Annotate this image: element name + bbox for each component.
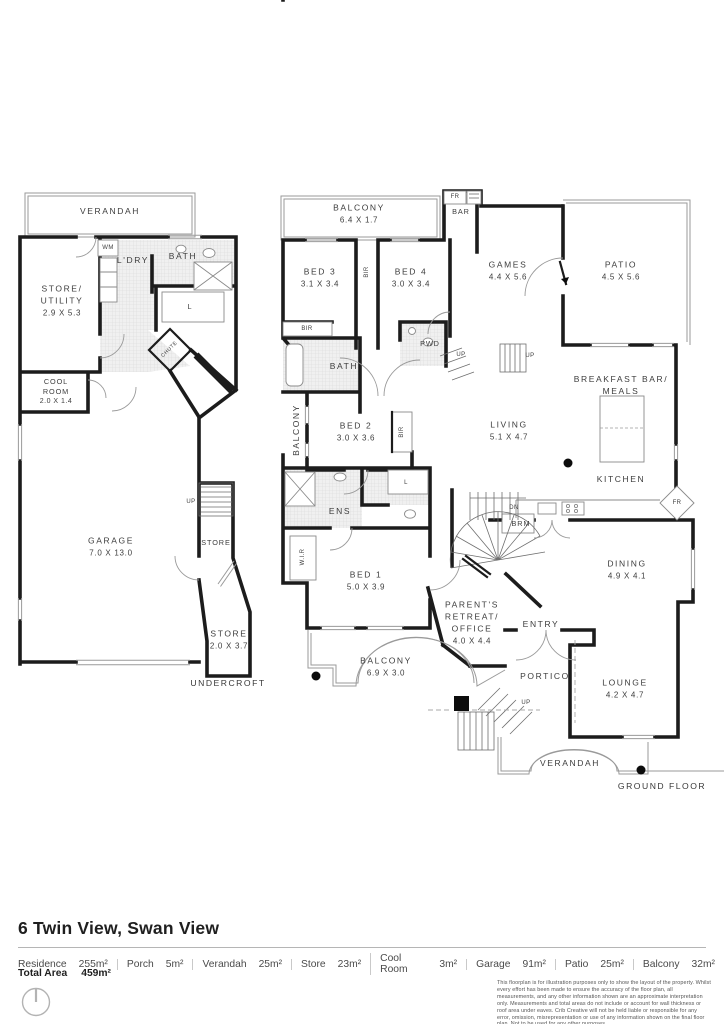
page-title: 6 Twin View, Swan View [18, 918, 219, 939]
room-label-parents-retreat: PARENT'SRETREAT/OFFICE4.0 X 4.4 [445, 600, 499, 647]
label-brm: BRM [512, 519, 531, 529]
label-up-1: UP [456, 351, 465, 359]
label-wir: W.I.R [299, 549, 307, 566]
label-dn: DN [509, 504, 518, 512]
toilet-icon [203, 249, 215, 258]
floorplan-page: VERANDAH STORE/UTILITY2.9 X 5.3 L'DRY BA… [0, 0, 724, 1024]
room-label-balcony-top: BALCONY6.4 X 1.7 [333, 202, 385, 225]
room-label-patio: PATIO4.5 X 5.6 [602, 259, 640, 282]
room-label-bed2: BED 23.0 X 3.6 [337, 420, 375, 443]
room-label-balcony-bottom: BALCONY6.9 X 3.0 [360, 655, 412, 678]
label-up-2: UP [525, 352, 534, 360]
room-label-garage: GARAGE7.0 X 13.0 [88, 535, 134, 558]
divider [18, 947, 706, 948]
room-label-bed1: BED 15.0 X 3.9 [347, 569, 385, 592]
portico-stairs [458, 688, 532, 750]
area-item-cool-room: Cool Room3m² [370, 953, 466, 975]
undercroft-plan [18, 0, 283, 676]
floorplan-drawing [0, 0, 724, 1024]
room-label-store-lower: STORE2.0 X 3.7 [210, 628, 248, 651]
compass-icon [23, 989, 50, 1016]
area-item-balcony: Balcony32m² [633, 959, 724, 970]
total-area-row: Total Area459m² [18, 968, 111, 979]
label-wm: WM [102, 244, 113, 252]
room-label-portico: PORTICO [520, 671, 570, 683]
room-label-lounge: LOUNGE4.2 X 4.7 [602, 677, 648, 700]
area-item-porch: Porch5m² [117, 959, 193, 970]
room-label-kitchen: KITCHEN [597, 474, 646, 486]
room-label-bed3: BED 33.1 X 3.4 [301, 266, 339, 289]
label-fr-bar: FR [451, 193, 460, 201]
label-bir-bed34: BIR [363, 266, 371, 277]
room-label-games: GAMES4.4 X 5.6 [489, 259, 528, 282]
room-label-ens: ENS [329, 506, 351, 518]
label-up-3: UP [521, 699, 530, 707]
label-bir-bed2: BIR [398, 426, 406, 437]
disclaimer-text: This floorplan is for illustration purpo… [497, 980, 711, 1024]
room-label-uc-verandah: VERANDAH [80, 206, 140, 218]
label-bir-bed3b: BIR [301, 325, 312, 333]
room-label-bed4: BED 43.0 X 3.4 [392, 266, 430, 289]
label-gf-linen: L [404, 479, 408, 487]
room-label-uc-linen: L [188, 302, 193, 312]
gf-verandah-outline [498, 737, 724, 774]
room-label-ldry: L'DRY [117, 255, 149, 267]
uc-stairs [199, 483, 233, 516]
room-label-balcony-side: BALCONY [291, 404, 303, 456]
area-summary-row: Residence255m² Porch5m² Verandah25m² Sto… [18, 953, 724, 975]
floor-label-ground: GROUND FLOOR [618, 780, 706, 792]
sink-icon [538, 503, 556, 514]
room-label-dining: DINING4.9 X 4.1 [607, 558, 646, 581]
label-uc-up: UP [186, 498, 195, 506]
room-label-gf-verandah: VERANDAH [540, 758, 600, 770]
room-label-breakfast-meals: BREAKFAST BAR/MEALS [574, 374, 669, 398]
post-square [454, 696, 469, 711]
room-label-gf-bath: BATH [330, 361, 358, 373]
room-label-entry: ENTRY [523, 619, 560, 631]
area-item-store: Store23m² [291, 959, 370, 970]
floor-label-undercroft: UNDERCROFT [190, 677, 265, 689]
bathtub-icon [286, 344, 303, 386]
room-label-pwd: PWD [420, 339, 440, 349]
room-label-uc-bath: BATH [169, 251, 197, 263]
label-fr-kitchen: FR [673, 499, 682, 507]
room-label-store-mid: STORE [201, 538, 231, 548]
room-label-living: LIVING5.1 X 4.7 [490, 419, 528, 442]
room-label-store-utility: STORE/UTILITY2.9 X 5.3 [41, 284, 84, 319]
area-item-garage: Garage91m² [466, 959, 555, 970]
cooktop-icon [562, 502, 584, 515]
area-item-patio: Patio25m² [555, 959, 633, 970]
room-label-cool-room: COOLROOM2.0 X 1.4 [40, 377, 73, 407]
island-bench [600, 396, 644, 462]
area-item-verandah: Verandah25m² [192, 959, 291, 970]
room-label-bar: BAR [452, 207, 470, 217]
